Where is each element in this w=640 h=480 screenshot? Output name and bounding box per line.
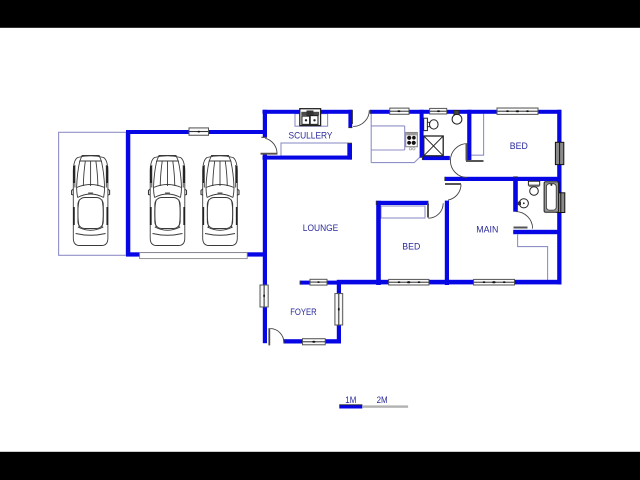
svg-text:SCULLERY: SCULLERY [289,131,334,142]
svg-text:LOUNGE: LOUNGE [303,223,339,234]
svg-text:BED: BED [510,141,528,152]
svg-text:FOYER: FOYER [290,307,317,318]
svg-text:2M: 2M [377,395,388,406]
svg-text:MAIN: MAIN [476,224,498,235]
svg-text:BED: BED [402,242,420,253]
